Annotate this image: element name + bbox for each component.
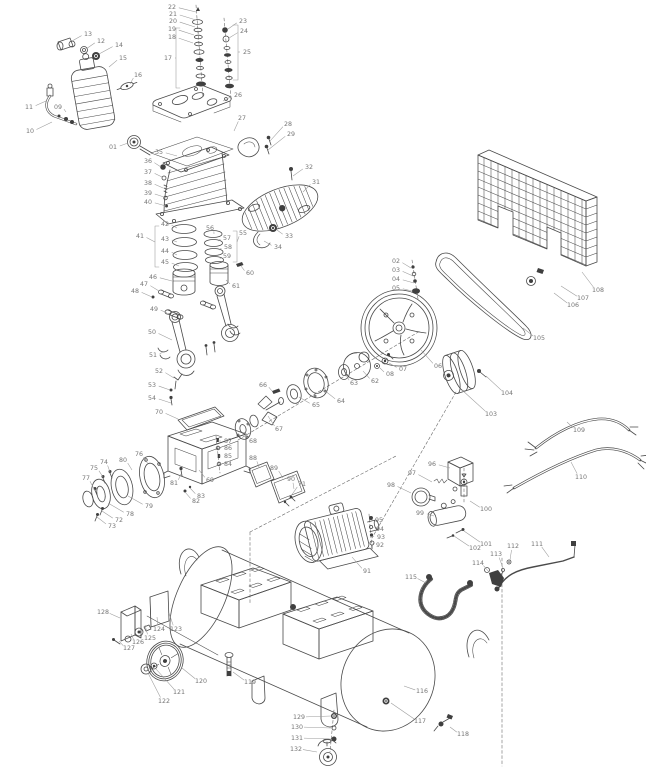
callout-13: 13	[84, 31, 92, 38]
callout-34: 34	[274, 244, 282, 251]
pressure-switch	[448, 457, 473, 491]
belt-guard	[478, 148, 597, 272]
callout-leader-21	[180, 15, 196, 20]
callout-05: 05	[392, 285, 400, 292]
callout-leader-72	[102, 511, 113, 518]
callout-117: 117	[414, 718, 426, 725]
callout-22: 22	[168, 4, 176, 11]
piston-small	[210, 262, 228, 286]
callout-leader-82	[185, 492, 191, 498]
callout-35: 35	[155, 149, 163, 156]
callout-leader-104	[486, 376, 502, 390]
callout-leader-52	[165, 373, 174, 378]
callout-11: 11	[25, 104, 33, 111]
callout-111: 111	[531, 541, 543, 548]
callout-leader-90	[293, 483, 294, 489]
wrist-pin-3	[200, 301, 215, 309]
compressor-exploded-diagram-page: 0102030405060708091011121314151617181920…	[0, 0, 646, 768]
callout-leader-22	[179, 8, 196, 12]
callout-leader-53	[159, 386, 170, 390]
drive-belt	[436, 253, 531, 340]
bearing-64	[301, 365, 332, 400]
callout-leader-79	[128, 496, 143, 504]
callout-15: 15	[119, 55, 127, 62]
manifold-screws	[447, 528, 465, 538]
callout-25: 25	[243, 49, 251, 56]
head-outlet-clamp	[238, 138, 259, 157]
callout-121: 121	[173, 689, 185, 696]
filter-nut	[81, 47, 88, 54]
piston-pin-bolt	[236, 262, 244, 267]
callout-43: 43	[161, 236, 169, 243]
callout-leader-12	[86, 43, 95, 49]
callout-68: 68	[249, 438, 257, 445]
callout-leader-36	[154, 163, 161, 167]
callout-80: 80	[119, 457, 127, 464]
callout-leader-108	[582, 272, 593, 287]
callout-leader-77	[90, 481, 95, 491]
callout-132: 132	[290, 746, 302, 753]
callout-123: 123	[170, 626, 182, 633]
callout-17: 17	[164, 55, 172, 62]
piston-large	[173, 269, 195, 295]
callout-04: 04	[392, 276, 400, 283]
callout-leader-119	[233, 672, 244, 680]
callout-65: 65	[312, 402, 320, 409]
callout-27: 27	[238, 115, 246, 122]
callout-leader-18	[179, 38, 193, 43]
callout-leader-10	[36, 122, 52, 129]
callout-leader-33	[277, 230, 283, 234]
callout-124: 124	[153, 626, 165, 633]
callout-130: 130	[291, 724, 303, 731]
callout-90: 90	[287, 476, 295, 483]
callout-leader-06	[421, 350, 433, 363]
callout-52: 52	[155, 368, 163, 375]
callout-24: 24	[240, 28, 248, 35]
callout-70: 70	[155, 409, 163, 416]
cylinder-head	[153, 85, 231, 122]
breather	[128, 136, 153, 156]
callout-118: 118	[457, 731, 469, 738]
callout-107: 107	[577, 295, 589, 302]
callout-26: 26	[234, 92, 242, 99]
callout-44: 44	[161, 248, 169, 255]
callout-94: 94	[376, 526, 384, 533]
callout-leader-98	[397, 486, 411, 493]
callout-64: 64	[337, 398, 345, 405]
tank-handle-right	[467, 630, 489, 658]
callout-58: 58	[224, 244, 232, 251]
tank-handle-left	[179, 549, 199, 576]
callout-89: 89	[270, 465, 278, 472]
pulley-screw	[477, 369, 486, 377]
callout-leader-59	[220, 258, 221, 259]
manifold	[425, 498, 467, 527]
callout-leader-11	[36, 101, 46, 106]
callout-115: 115	[405, 574, 417, 581]
callout-leader-70	[166, 413, 178, 419]
discharge-hose	[420, 574, 473, 618]
callout-leader-83	[190, 488, 195, 494]
callout-42: 42	[161, 221, 169, 228]
clamp-bolts	[265, 136, 271, 154]
callout-60: 60	[246, 270, 254, 277]
callout-97: 97	[408, 470, 416, 477]
flywheel	[361, 290, 437, 366]
callout-leader-28	[270, 127, 283, 141]
callout-108: 108	[592, 287, 604, 294]
crankcase-gasket	[178, 407, 224, 430]
callout-86: 86	[224, 445, 232, 452]
callout-41: 41	[136, 233, 144, 240]
tank-plug	[383, 698, 390, 705]
callout-88: 88	[249, 455, 257, 462]
callout-leader-101	[464, 531, 480, 542]
callout-07: 07	[399, 366, 407, 373]
callout-66: 66	[259, 382, 267, 389]
callout-39: 39	[144, 190, 152, 197]
callout-leader-122	[148, 673, 161, 698]
callout-20: 20	[169, 18, 177, 25]
callout-96: 96	[428, 461, 436, 468]
callout-leader-106	[554, 293, 567, 303]
callout-leader-15	[109, 60, 117, 67]
callout-leader-39	[155, 194, 164, 197]
callout-leader-37	[155, 173, 162, 177]
callout-57: 57	[223, 235, 231, 242]
road-wheel	[142, 636, 189, 685]
callout-02: 02	[392, 258, 400, 265]
drain-valve	[434, 714, 453, 731]
callout-29: 29	[287, 131, 295, 138]
callout-10: 10	[26, 128, 34, 135]
cooler-bolt	[289, 167, 293, 180]
callout-21: 21	[169, 11, 177, 18]
fitting-16	[116, 80, 138, 93]
callout-leader-38	[155, 184, 163, 188]
callout-87: 87	[224, 438, 232, 445]
callout-leader-97	[418, 475, 432, 482]
caster-wheel	[318, 739, 337, 766]
guard-screw	[527, 268, 545, 286]
callout-46: 46	[149, 274, 157, 281]
mount-plate	[150, 591, 169, 627]
callout-116: 116	[416, 688, 428, 695]
callout-leader-128	[110, 613, 120, 618]
callout-labels: 0102030405060708091011121314151617181920…	[25, 4, 604, 753]
callout-leader-47	[150, 286, 159, 291]
tank-platform-2	[283, 596, 373, 659]
callout-leader-110	[571, 462, 577, 474]
callout-33: 33	[285, 233, 293, 240]
callout-51: 51	[149, 352, 157, 359]
callout-leader-64	[324, 390, 335, 399]
callout-53: 53	[148, 382, 156, 389]
callout-45: 45	[161, 259, 169, 266]
air-filter-body	[67, 51, 115, 131]
callout-leader-114	[483, 566, 489, 572]
callout-28: 28	[284, 121, 292, 128]
callout-127: 127	[123, 645, 135, 652]
valve-stack-right	[222, 27, 234, 88]
callout-08: 08	[386, 371, 394, 378]
callout-leader-124	[157, 617, 158, 625]
bracket-55	[233, 231, 237, 262]
callout-leader-54	[159, 399, 171, 403]
exploded-parts-diagram: 0102030405060708091011121314151617181920…	[0, 0, 646, 768]
callout-16: 16	[134, 72, 142, 79]
callout-131: 131	[291, 735, 303, 742]
callout-114: 114	[472, 560, 484, 567]
callout-leader-32	[293, 169, 303, 176]
callout-81: 81	[170, 480, 178, 487]
callout-leader-103	[462, 390, 486, 411]
cylinder-block	[156, 147, 244, 224]
callout-leader-08	[380, 368, 384, 372]
callout-122: 122	[158, 698, 170, 705]
callout-74: 74	[100, 459, 108, 466]
power-cord-lower	[504, 449, 646, 493]
callout-50: 50	[148, 329, 156, 336]
callout-129: 129	[293, 714, 305, 721]
callout-56: 56	[206, 225, 214, 232]
callout-91: 91	[363, 568, 371, 575]
callout-75: 75	[90, 465, 98, 472]
callout-leader-19	[179, 30, 194, 35]
callout-leader-107	[561, 286, 577, 296]
callout-104: 104	[501, 390, 513, 397]
callout-leader-09	[64, 109, 66, 112]
callout-leader-51	[160, 352, 163, 354]
callout-leader-102	[454, 536, 469, 546]
callout-77: 77	[82, 475, 90, 482]
crankcase-bolts-81-83	[179, 467, 191, 493]
callout-leader-03	[403, 271, 413, 276]
callout-32: 32	[305, 164, 313, 171]
after-cooler	[236, 175, 324, 240]
motor-pulley	[438, 348, 479, 395]
callout-37: 37	[144, 169, 152, 176]
bearing-65	[285, 383, 303, 405]
air-tank	[157, 538, 489, 746]
callout-leader-117	[391, 703, 414, 719]
cover-bolts	[94, 470, 113, 521]
callout-leader-112	[510, 550, 512, 560]
callout-69: 69	[206, 477, 214, 484]
callout-113: 113	[490, 551, 502, 558]
wrist-pin-left	[152, 290, 174, 299]
callout-leader-46	[160, 278, 172, 281]
callout-leader-24	[229, 33, 238, 38]
callout-14: 14	[115, 42, 123, 49]
callout-leader-41	[146, 237, 155, 242]
callout-92: 92	[376, 542, 384, 549]
callout-71: 71	[298, 481, 306, 488]
callout-76: 76	[135, 451, 143, 458]
callout-78: 78	[126, 511, 134, 518]
callout-leader-48	[142, 292, 152, 297]
callout-leader-60	[241, 266, 244, 271]
callout-03: 03	[392, 267, 400, 274]
callout-54: 54	[148, 395, 156, 402]
callout-72: 72	[115, 517, 123, 524]
callout-85: 85	[224, 453, 232, 460]
callout-leader-131	[304, 738, 331, 739]
callout-leader-35	[166, 153, 177, 156]
callout-leader-14	[99, 47, 113, 54]
callout-leader-116	[404, 686, 415, 690]
callout-leader-66	[269, 387, 272, 391]
connecting-rod-left	[170, 312, 196, 376]
callout-leader-120	[182, 668, 195, 679]
callout-101: 101	[480, 541, 492, 548]
callout-84: 84	[224, 461, 232, 468]
callout-leader-13	[72, 36, 82, 41]
callout-leader-80	[128, 463, 132, 470]
callout-67: 67	[275, 426, 283, 433]
callout-18: 18	[168, 34, 176, 41]
callout-36: 36	[144, 158, 152, 165]
callout-leader-113	[499, 558, 503, 568]
shaft-key	[272, 389, 281, 395]
callout-125: 125	[144, 635, 156, 642]
tank-platform-1	[201, 567, 291, 628]
callout-73: 73	[108, 523, 116, 530]
callout-93: 93	[377, 534, 385, 541]
callout-59: 59	[223, 253, 231, 260]
callout-83: 83	[197, 493, 205, 500]
callout-leader-27	[234, 121, 238, 131]
callout-leader-132	[303, 750, 317, 752]
callout-01: 01	[109, 144, 117, 151]
unloader-spring	[434, 479, 447, 483]
callout-leader-02	[402, 263, 411, 268]
callout-leader-50	[158, 333, 172, 340]
connecting-rod-right	[215, 286, 239, 342]
callout-109: 109	[573, 427, 585, 434]
callout-128: 128	[97, 609, 109, 616]
bearing-63	[339, 365, 350, 380]
callout-31: 31	[312, 179, 320, 186]
outlet-nut	[269, 224, 277, 232]
callout-23: 23	[239, 18, 247, 25]
callout-09: 09	[54, 104, 62, 111]
callout-61: 61	[232, 283, 240, 290]
callout-119: 119	[244, 679, 256, 686]
callout-19: 19	[168, 26, 176, 33]
callout-40: 40	[144, 199, 152, 206]
callout-99: 99	[416, 510, 424, 517]
callout-48: 48	[131, 288, 139, 295]
flywheel-bolt-stack	[411, 265, 420, 293]
callout-leader-23	[228, 23, 237, 29]
callout-leader-115	[417, 578, 426, 583]
bracket-17	[176, 28, 180, 88]
callout-100: 100	[480, 506, 492, 513]
callout-120: 120	[195, 678, 207, 685]
callout-102: 102	[469, 545, 481, 552]
callout-62: 62	[371, 378, 379, 385]
callout-110: 110	[575, 474, 587, 481]
bracket-41	[155, 226, 159, 267]
callout-06: 06	[434, 363, 442, 370]
crankcase	[164, 422, 250, 484]
air-filter-assembly	[47, 38, 138, 131]
callout-95: 95	[375, 517, 383, 524]
callout-leader-100	[470, 501, 480, 507]
callout-12: 12	[97, 38, 105, 45]
callout-leader-129	[306, 716, 331, 717]
ring-stack-right	[204, 231, 224, 264]
callout-79: 79	[145, 503, 153, 510]
caster-hardware-stack	[331, 713, 337, 742]
callout-112: 112	[507, 543, 519, 550]
callout-leader-118	[450, 727, 457, 732]
callout-leader-130	[304, 727, 331, 728]
callout-leader-04	[403, 280, 414, 283]
callout-leader-111	[542, 547, 549, 557]
callout-47: 47	[140, 281, 148, 288]
callout-leader-01	[120, 143, 128, 146]
callout-98: 98	[387, 482, 395, 489]
callout-leader-75	[99, 471, 103, 477]
callout-55: 55	[239, 230, 247, 237]
intake-elbow	[57, 38, 75, 50]
callout-leader-73	[97, 517, 106, 524]
callout-38: 38	[144, 180, 152, 187]
oil-dipper-parts	[169, 374, 182, 405]
callout-63: 63	[350, 380, 358, 387]
callout-106: 106	[567, 302, 579, 309]
pressure-gauge	[412, 488, 435, 506]
callout-103: 103	[485, 411, 497, 418]
callout-105: 105	[533, 335, 545, 342]
pipe-fittings	[500, 560, 511, 576]
callout-49: 49	[150, 306, 158, 313]
callout-leader-34	[264, 241, 272, 245]
